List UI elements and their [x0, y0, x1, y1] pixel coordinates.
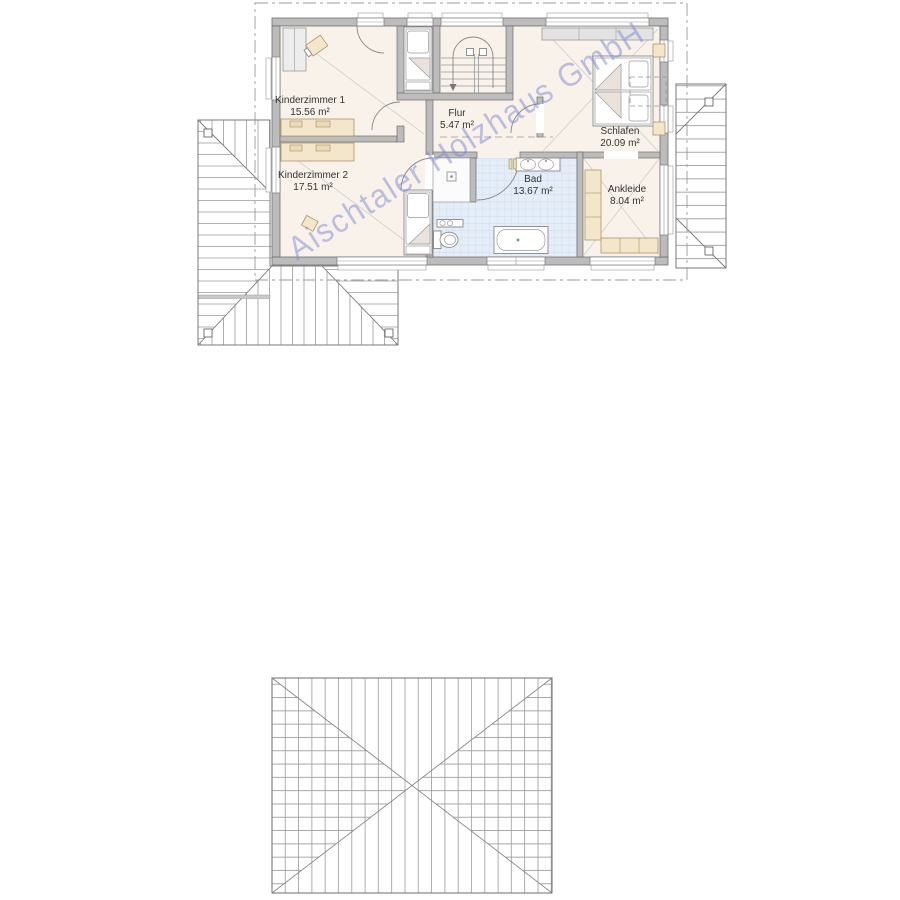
roof-post-marker — [705, 98, 713, 106]
bed-icon — [404, 27, 432, 91]
room-label-ankleide: Ankleide — [608, 184, 647, 195]
detached-roof-plan — [272, 678, 552, 893]
stair-newel-post — [480, 49, 487, 56]
wall-stair-left — [433, 26, 440, 93]
wall-bad-north-right — [520, 152, 582, 158]
window-sill — [668, 41, 673, 61]
roof-post-marker — [385, 329, 393, 337]
right-roof-hatch — [676, 84, 726, 268]
room-label-kinderzimmer-1: Kinderzimmer 1 — [275, 95, 345, 106]
window-sill — [488, 265, 544, 270]
room-label-bad: Bad — [524, 174, 542, 185]
room-label-schlafen: Schlafen — [601, 126, 640, 137]
window-sill — [668, 106, 673, 132]
wall-kz1-kz2 — [280, 136, 397, 142]
wall-kz1-niche — [397, 26, 404, 93]
roof-post-marker — [705, 247, 713, 255]
window-sill — [266, 58, 271, 99]
wardrobe — [585, 170, 601, 240]
window-sill — [358, 13, 383, 18]
desk-item — [290, 145, 302, 151]
window-sill — [408, 13, 432, 18]
left-roof-ridge — [198, 295, 270, 299]
nightstand — [653, 122, 665, 135]
roof-post-marker — [204, 129, 212, 137]
wall-door-stub — [397, 126, 404, 142]
desk-item — [316, 121, 330, 127]
bathtub-icon — [494, 227, 548, 254]
wardrobe — [601, 238, 658, 253]
room-area-ankleide: 8.04 m² — [610, 196, 645, 207]
toilet-icon — [434, 231, 459, 249]
right-roof-plan — [676, 84, 726, 268]
room-label-kinderzimmer-2: Kinderzimmer 2 — [278, 170, 348, 181]
window-sill — [266, 148, 271, 192]
room-area-schlafen: 20.09 m² — [600, 138, 640, 149]
window-sill — [668, 166, 673, 234]
window-sill — [442, 13, 502, 18]
architectural-drawing-page: Aischtaler Holzhaus GmbH Kinderzimmer 1 … — [0, 0, 900, 900]
room-area-flur: 5.47 m² — [440, 120, 475, 131]
wall-stair-right — [506, 26, 513, 93]
room-area-kinderzimmer-2: 17.51 m² — [293, 182, 333, 193]
desk-item — [290, 121, 302, 127]
roof-post-marker — [204, 329, 212, 337]
wall-shower-partition — [470, 158, 476, 202]
room-area-kinderzimmer-1: 15.56 m² — [290, 107, 330, 118]
door-opening-ankleide — [604, 151, 638, 159]
bed-icon — [404, 190, 432, 255]
floor-plan-drawing: Aischtaler Holzhaus GmbH Kinderzimmer 1 … — [0, 0, 900, 900]
window-sill — [591, 265, 654, 270]
towel-radiator-icon — [437, 220, 463, 228]
room-label-flur: Flur — [448, 108, 466, 119]
double-sink-icon — [509, 158, 560, 171]
stair-newel-post — [467, 49, 474, 56]
nightstand — [653, 44, 665, 57]
room-area-bad: 13.67 m² — [513, 186, 553, 197]
desk-item — [316, 145, 330, 151]
window-sill — [338, 265, 426, 270]
wall-bad-ankleide — [577, 152, 583, 257]
